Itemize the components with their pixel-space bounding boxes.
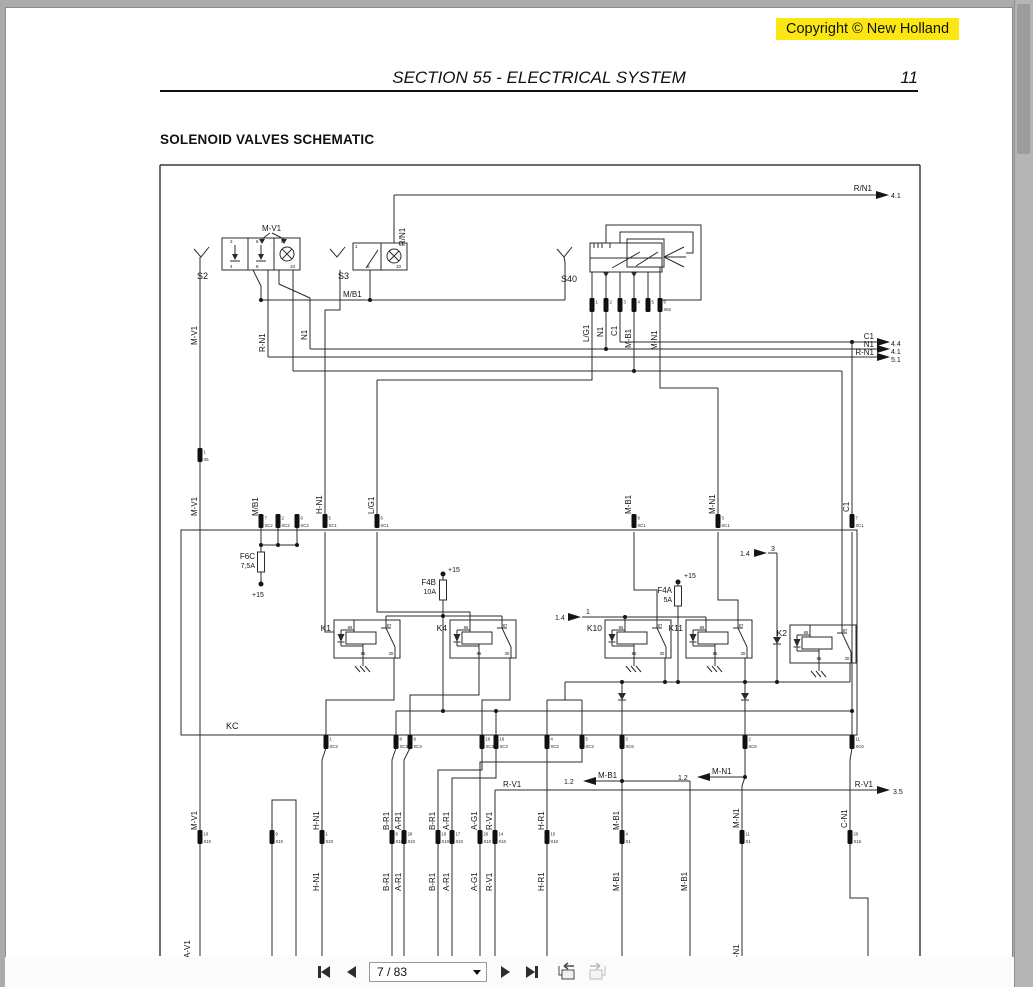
- wire-label: 9: [367, 264, 370, 269]
- junction-dot: [623, 615, 627, 619]
- connector-pin: [436, 830, 441, 844]
- wire-label: L/G1: [367, 496, 376, 514]
- connector-name: XC3: [330, 744, 339, 749]
- pin-number: 6: [381, 516, 384, 521]
- wire-label: A-G1: [470, 872, 479, 891]
- pin-number: 9: [414, 737, 417, 742]
- pin-number: 4: [626, 832, 629, 837]
- wire-label: F4A: [657, 586, 672, 595]
- ground-icon: [355, 658, 370, 672]
- wire-label: M-N1: [732, 808, 741, 828]
- wire-label: 4: [230, 264, 233, 269]
- connector-pin: [494, 735, 499, 749]
- connector-pin: [740, 830, 745, 844]
- wire-label: A-R1: [394, 811, 403, 830]
- wire-label: 2: [230, 239, 233, 244]
- wire-label: C1: [842, 501, 851, 512]
- wire-label: 7,5A: [241, 563, 256, 570]
- wire-label: S3: [338, 271, 349, 281]
- power-terminal-dot: [676, 580, 681, 585]
- connector-pin: [620, 830, 625, 844]
- previous-view-button[interactable]: [556, 962, 578, 982]
- junction-dot: [259, 298, 263, 302]
- connector-pin: [716, 514, 721, 528]
- next-view-button[interactable]: [586, 962, 608, 982]
- pin-number: 5: [329, 516, 332, 521]
- pin-number: 20: [854, 832, 859, 837]
- connector-name: XC1: [329, 523, 338, 528]
- connector-name: XC3: [586, 744, 595, 749]
- pin-number: 28: [408, 832, 413, 837]
- next-page-icon: [501, 966, 510, 978]
- page-ref-arrow: [877, 353, 890, 361]
- last-page-icon: [526, 966, 535, 978]
- wire-label: R-V1: [503, 780, 522, 789]
- pin-number: 5: [652, 300, 655, 305]
- junction-dot: [775, 680, 779, 684]
- junction-dot: [620, 779, 624, 783]
- pin-number: 1: [204, 450, 207, 455]
- page-ref-arrow: [877, 786, 890, 794]
- connector-pin: [618, 298, 623, 312]
- connector-name: XC6: [856, 744, 865, 749]
- connector-name: XC3: [486, 744, 495, 749]
- wire-label: M-V1: [262, 224, 282, 233]
- wire-label: 6: [256, 239, 259, 244]
- connector-name: X10: [204, 839, 212, 844]
- connector-name: X10: [456, 839, 464, 844]
- wire-label: N1: [300, 329, 309, 340]
- connector-pin: [323, 514, 328, 528]
- page-ref-arrow: [754, 549, 767, 557]
- page-ref-arrow: [876, 191, 889, 199]
- relay-pin-label: 30: [660, 651, 665, 656]
- wire-label: +15: [684, 573, 696, 580]
- page-ref-arrow: [877, 338, 890, 346]
- connector-name: X16: [854, 839, 862, 844]
- junction-dot: [259, 543, 263, 547]
- junction-dot: [441, 709, 445, 713]
- vertical-scrollbar[interactable]: [1014, 0, 1033, 987]
- connector-name: XC3: [551, 744, 560, 749]
- wire-label: C-N1: [840, 809, 849, 828]
- connector-pin: [198, 830, 203, 844]
- wire-label: M-B1: [612, 810, 621, 830]
- wire-label: M-N1: [712, 767, 732, 776]
- pin-number: 3: [722, 516, 725, 521]
- wire-label: H-N1: [312, 811, 321, 830]
- connector-name: X10: [484, 839, 492, 844]
- wire-label: 4.1: [891, 193, 901, 200]
- junction-dot: [663, 680, 667, 684]
- connector-pin: [632, 298, 637, 312]
- connector-pin: [394, 735, 399, 749]
- connector-pin: [276, 514, 281, 528]
- connector-pin: [646, 298, 651, 312]
- connector-name: XC1: [722, 523, 731, 528]
- junction-dot: [743, 680, 747, 684]
- wire-label: M-B1: [612, 871, 621, 891]
- connector-name: XC3: [500, 744, 509, 749]
- wire-label: A-G1: [470, 811, 479, 830]
- relay-pin-label: 87: [387, 623, 392, 628]
- previous-page-icon: [347, 966, 356, 978]
- fuses: [258, 552, 682, 606]
- wire-label: B-R1: [382, 872, 391, 891]
- connector-name: XC1: [638, 523, 647, 528]
- page-ref-arrow: [568, 613, 581, 621]
- wire-label: A-V1: [183, 940, 192, 958]
- kc-control-unit-box: [181, 530, 857, 735]
- junction-dot: [850, 709, 854, 713]
- wire-label: H-N1: [315, 495, 324, 514]
- relay-pin-label: 85: [361, 651, 366, 656]
- wire-label: 5.1: [891, 357, 901, 364]
- connector-name: XC2: [282, 523, 291, 528]
- connector-pin: [390, 830, 395, 844]
- pin-number: 7: [265, 516, 268, 521]
- pin-number: 16: [500, 737, 505, 742]
- connector-name: X10: [442, 839, 450, 844]
- relay-pin-label: 87: [739, 623, 744, 628]
- ground-icon: [811, 663, 826, 677]
- junction-dot: [441, 614, 445, 618]
- next-view-icon: [586, 962, 608, 982]
- wire-label: M-V1: [190, 810, 199, 830]
- pin-number: 11: [746, 832, 751, 837]
- connector-pin: [270, 830, 275, 844]
- wire-label: 4.4: [891, 341, 901, 348]
- connector-name: X10: [276, 839, 284, 844]
- wire-label: 4.1: [891, 349, 901, 356]
- relay-pin-label: 87: [503, 623, 508, 628]
- connector-pin: [620, 735, 625, 749]
- connector-name: X10: [499, 839, 507, 844]
- wire-label: 3: [771, 546, 775, 553]
- pin-number: 11: [856, 737, 861, 742]
- connector-name: XC1: [381, 523, 390, 528]
- wire-label: 1.2: [678, 775, 688, 782]
- wire-label: M-V1: [190, 325, 199, 345]
- fuse-f6c: [258, 552, 265, 572]
- relay-pin-label: 30: [505, 651, 510, 656]
- wire-label: C1: [610, 325, 619, 336]
- pin-number: 7: [856, 516, 859, 521]
- wire-label: 1.4: [555, 615, 565, 622]
- wires: [200, 195, 877, 956]
- wire-label: +15: [252, 592, 264, 599]
- connector-pin: [848, 830, 853, 844]
- connector-name: XC1: [856, 523, 865, 528]
- last-page-button[interactable]: [523, 962, 541, 982]
- junction-dot: [620, 680, 624, 684]
- pin-number: 1: [326, 832, 329, 837]
- relay-pin-label: 87: [658, 623, 663, 628]
- wire-label: L/G1: [582, 324, 591, 342]
- connector-name: X10: [326, 839, 334, 844]
- relay-pin-label: 87: [843, 628, 848, 633]
- pin-number: 8: [400, 737, 403, 742]
- wire-label: 1: [355, 244, 358, 249]
- page-ref-arrow: [697, 773, 710, 781]
- connector-pin: [743, 735, 748, 749]
- connector-pin: [480, 735, 485, 749]
- previous-view-icon: [556, 962, 578, 982]
- pin-number: 26: [484, 832, 489, 837]
- wire-label: B-R1: [382, 811, 391, 830]
- page-navigation-toolbar: [5, 957, 1014, 987]
- wire-label: B-R1: [428, 811, 437, 830]
- connector-name: X1: [626, 839, 632, 844]
- pin-number: 10: [551, 832, 556, 837]
- connector-name: XC3: [414, 744, 423, 749]
- wire-label: 10: [396, 264, 402, 269]
- connector-name: X10: [408, 839, 416, 844]
- page-ref-arrow: [877, 345, 890, 353]
- wire-label: M-V1: [190, 496, 199, 516]
- previous-page-button[interactable]: [342, 962, 360, 982]
- junction-dot: [743, 775, 747, 779]
- pin-number: 10: [204, 832, 209, 837]
- pin-number: 8: [396, 832, 399, 837]
- wire-label: 1: [586, 609, 590, 616]
- wire-label: H-N1: [312, 872, 321, 891]
- power-terminal-dot: [441, 572, 446, 577]
- wire-label: 10: [290, 264, 296, 269]
- fuse-f4a: [675, 586, 682, 606]
- diodes: [618, 634, 781, 706]
- wire-label: 8: [256, 264, 259, 269]
- relay-pin-label: 85: [713, 651, 718, 656]
- connector-pin: [450, 830, 455, 844]
- connector-pin: [408, 735, 413, 749]
- connector-name: X6: [204, 457, 210, 462]
- scrollbar-thumb[interactable]: [1017, 4, 1030, 154]
- connector-pin: [580, 735, 585, 749]
- relay-name: K4: [437, 623, 448, 633]
- wire-label: 1.2: [564, 779, 574, 786]
- junction-dot: [295, 543, 299, 547]
- wire-label: R-N1: [258, 333, 267, 352]
- switch-s2: [194, 233, 300, 270]
- wire-label: KC: [226, 721, 239, 731]
- relay-name: K11: [669, 623, 684, 633]
- connector-pin: [850, 514, 855, 528]
- pin-number: 8: [638, 516, 641, 521]
- wire-label: R-V1: [485, 811, 494, 830]
- wire-label: +15: [448, 567, 460, 574]
- relay-name: K2: [777, 628, 788, 638]
- wire-label: S2: [197, 271, 208, 281]
- relay-pin-label: 86: [348, 625, 353, 630]
- relay-pin-label: 30: [845, 656, 850, 661]
- pin-number: 2: [282, 516, 285, 521]
- relay-name: K1: [321, 623, 332, 633]
- wire-label: M-N1: [650, 330, 659, 350]
- pin-number: 3: [626, 737, 629, 742]
- wire-label: H-R1: [537, 811, 546, 830]
- relay-pin-label: 30: [389, 651, 394, 656]
- page-number-input[interactable]: [369, 962, 487, 982]
- junction-dot: [850, 340, 854, 344]
- pin-number: 3: [624, 300, 627, 305]
- switch-s40: [557, 239, 686, 277]
- connector-name: XC6: [749, 744, 758, 749]
- relay-name: K10: [587, 623, 602, 633]
- relay-pin-label: 86: [700, 625, 705, 630]
- pin-number: 19: [486, 737, 491, 742]
- ground-icon: [707, 658, 722, 672]
- pin-number: 2: [610, 300, 613, 305]
- connector-pin: [320, 830, 325, 844]
- pin-number: 6: [301, 516, 304, 521]
- connector-name: XC3: [400, 744, 409, 749]
- junction-dot: [276, 543, 280, 547]
- wire-label: R/N1: [398, 227, 407, 246]
- wire-label: M-B1: [598, 771, 618, 780]
- wire-label: 10A: [424, 589, 437, 596]
- junction-dot: [676, 680, 680, 684]
- junction-dot: [632, 369, 636, 373]
- connector-name: XC6: [626, 744, 635, 749]
- page-number-combobox[interactable]: [369, 962, 487, 982]
- relay-pin-label: 86: [464, 625, 469, 630]
- wire-label: 1.4: [740, 551, 750, 558]
- wire-label: 3.5: [893, 789, 903, 796]
- junction-dot: [604, 347, 608, 351]
- connector-pin: [545, 830, 550, 844]
- wire-label: A-R1: [442, 811, 451, 830]
- pin-number: 14: [499, 832, 504, 837]
- wire-label: M-B1: [624, 494, 633, 514]
- wire-label: N1: [596, 326, 605, 337]
- wire-label: 5A: [663, 597, 672, 604]
- junction-dot: [494, 709, 498, 713]
- wire-label: M/B1: [343, 290, 362, 299]
- connector-name: X1: [746, 839, 752, 844]
- pin-number: 5: [586, 737, 589, 742]
- connector-pin: [545, 735, 550, 749]
- connector-pin: [259, 514, 264, 528]
- connector-pin: [604, 298, 609, 312]
- wire-label: R-V1: [485, 872, 494, 891]
- wire-label: S40: [561, 274, 577, 284]
- wire-label: M-B1: [680, 871, 689, 891]
- pin-number: 4: [551, 737, 554, 742]
- connector-pin: [850, 735, 855, 749]
- pin-number: 1: [596, 300, 599, 305]
- wire-label: M/B1: [251, 497, 260, 516]
- relay-pin-label: 85: [817, 656, 822, 661]
- connector-name: XC2: [301, 523, 310, 528]
- relay-pin-label: 85: [632, 651, 637, 656]
- pin-number: 9: [276, 832, 279, 837]
- pin-number: 4: [638, 300, 641, 305]
- wire-label: F4B: [421, 578, 436, 587]
- connector-pin: [632, 514, 637, 528]
- solenoid-valves-schematic: M-V1S2S3S40R/N1M/B1R/N14.1C14.4N14.1R-N1…: [0, 0, 1033, 987]
- fuse-f4b: [440, 580, 447, 600]
- connector-pin: [295, 514, 300, 528]
- page-ref-arrow: [583, 777, 596, 785]
- connector-pin: [658, 298, 663, 312]
- relay-pin-label: 86: [804, 630, 809, 635]
- connector-name: X10: [551, 839, 559, 844]
- ground-icon: [626, 658, 641, 672]
- wire-label: R-N1: [855, 348, 874, 357]
- connector-pin: [402, 830, 407, 844]
- wire-label: R/N1: [854, 184, 873, 193]
- wire-label: A-R1: [442, 872, 451, 891]
- connector-pin: [198, 448, 203, 462]
- relay-pin-label: 86: [619, 625, 624, 630]
- connector-pin: [590, 298, 595, 312]
- pin-number: 2: [749, 737, 752, 742]
- power-terminal-dot: [259, 582, 264, 587]
- next-page-button[interactable]: [496, 962, 514, 982]
- connector-name: XC2: [265, 523, 274, 528]
- relay-pin-label: 30: [741, 651, 746, 656]
- pin-number: 18: [442, 832, 447, 837]
- wire-label: A-R1: [394, 872, 403, 891]
- first-page-button[interactable]: [315, 962, 333, 982]
- wire-label: M-B1: [624, 328, 633, 348]
- wire-label: B-R1: [428, 872, 437, 891]
- junction-dot: [368, 298, 372, 302]
- pin-number: 1: [330, 737, 333, 742]
- wire-label: H-R1: [537, 872, 546, 891]
- wire-label: R-V1: [855, 780, 874, 789]
- pdf-viewer: { "page": { "copyright": "Copyright © Ne…: [0, 0, 1033, 987]
- connector-name: X62: [664, 307, 672, 312]
- relay-pin-label: 85: [477, 651, 482, 656]
- wire-label: M-N1: [708, 494, 717, 514]
- connector-pin: [493, 830, 498, 844]
- connector-pin: [324, 735, 329, 749]
- wire-label: F6C: [240, 552, 255, 561]
- pin-number: 17: [456, 832, 461, 837]
- connector-pin: [375, 514, 380, 528]
- connector-pin: [478, 830, 483, 844]
